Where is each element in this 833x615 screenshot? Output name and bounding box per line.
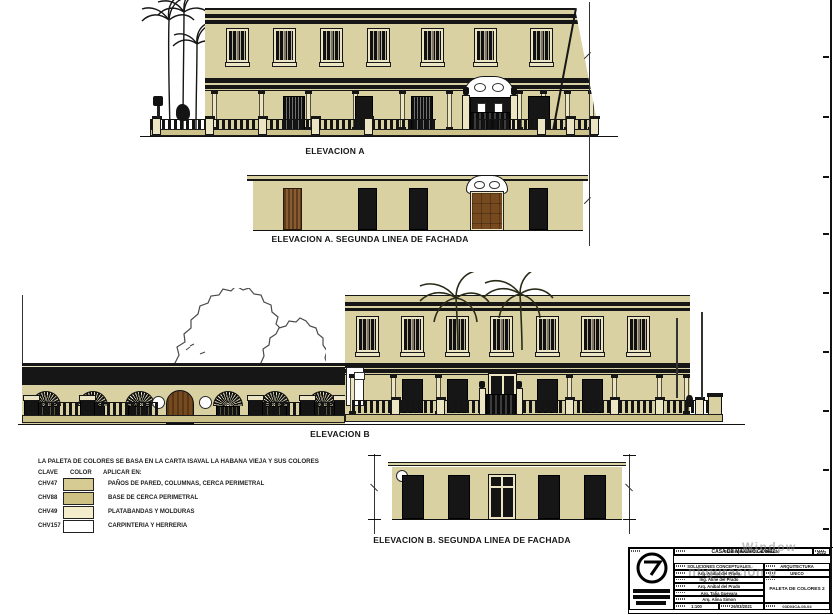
cornice-band xyxy=(345,369,690,373)
legend-code: CHV157 xyxy=(38,523,61,529)
ground-line xyxy=(18,424,745,426)
fence-railing xyxy=(39,402,80,415)
ground-line xyxy=(623,455,636,456)
window xyxy=(475,29,496,62)
line xyxy=(584,197,591,204)
fence-base xyxy=(345,414,723,422)
portal-ornament xyxy=(464,76,514,98)
round-window xyxy=(199,396,212,409)
statue xyxy=(686,395,693,407)
redacted-text-bar xyxy=(633,589,670,593)
color-swatch xyxy=(63,520,94,533)
ground-line xyxy=(253,230,583,231)
ground-line xyxy=(368,519,381,520)
dimension-line xyxy=(589,2,590,246)
window xyxy=(582,317,603,352)
logo-icon xyxy=(634,551,670,587)
door xyxy=(283,188,302,230)
window xyxy=(422,29,443,62)
fence-railing xyxy=(150,119,436,129)
legend-header-aplicar: APLICAR EN: xyxy=(103,470,142,476)
border-tick xyxy=(823,292,829,294)
fence-base xyxy=(22,415,345,423)
color-swatch xyxy=(63,492,94,505)
door xyxy=(471,192,503,230)
door xyxy=(538,475,560,519)
window xyxy=(531,29,552,62)
legend-header-color: COLOR xyxy=(70,470,92,476)
legend-code: CHV49 xyxy=(38,509,57,515)
dimension-line xyxy=(374,454,375,534)
team-member: Arq. Talia Guevara xyxy=(674,590,764,597)
fence-post xyxy=(152,117,161,135)
border-tick xyxy=(823,116,829,118)
tree-outlines xyxy=(168,288,326,366)
cornice-band xyxy=(205,14,598,18)
legend-title: LA PALETA DE COLORES SE BASA EN LA CARTA… xyxy=(38,458,319,465)
palm-fronds-b xyxy=(408,272,583,352)
fence-post xyxy=(537,117,546,135)
redacted-text-bar xyxy=(633,595,670,599)
legend-desc: BASE DE CERCA PERIMETRAL xyxy=(108,495,198,501)
window xyxy=(368,29,389,62)
fence-railing xyxy=(523,400,695,413)
legend-code: CHV88 xyxy=(38,495,57,501)
legend-desc: PLATABANDAS Y MOLDURAS xyxy=(108,509,195,515)
team-member: Arq. Anibal del Prado xyxy=(674,583,764,590)
color-swatch xyxy=(63,478,94,491)
sheet-title-cell: PALETA DE COLORES 2 xyxy=(764,577,830,603)
border-tick xyxy=(823,56,829,58)
ground-line xyxy=(392,519,622,520)
cornice-band xyxy=(205,20,598,24)
drawing-code-cell: 03D03CA-03-04 xyxy=(764,603,830,610)
redacted-text-bar xyxy=(636,601,666,605)
border-tick xyxy=(823,176,829,178)
dimension-line xyxy=(629,454,630,534)
fence-post xyxy=(311,117,320,135)
shrub xyxy=(176,104,190,121)
elevation-b-label: ELEVACION B xyxy=(280,429,400,439)
door xyxy=(409,188,428,230)
window xyxy=(274,29,295,62)
border-tick xyxy=(823,233,829,235)
team-member: Arq. Alina Simon xyxy=(674,596,764,603)
border-tick xyxy=(823,410,829,412)
column xyxy=(447,90,452,130)
fence-railing xyxy=(263,402,300,415)
dimension-line xyxy=(830,0,832,613)
elevation-a-label: ELEVACION A xyxy=(270,146,400,156)
fence-railing xyxy=(95,402,158,415)
lantern-icon xyxy=(511,87,517,95)
cornice-band xyxy=(205,85,598,89)
lantern-icon xyxy=(153,96,163,106)
ground-line xyxy=(623,519,636,520)
edge-line xyxy=(205,8,598,10)
legend-desc: PAÑOS DE PARED, COLUMNAS, CERCA PERIMETR… xyxy=(108,481,264,487)
door xyxy=(529,188,548,230)
fence-post xyxy=(205,117,214,135)
drawing-sheet: ELEVACION A ELEVACION A. SEGUNDA LINEA D… xyxy=(0,0,833,615)
legend-code: CHV47 xyxy=(38,481,57,487)
lantern-icon xyxy=(479,381,485,388)
door xyxy=(358,188,377,230)
border-tick xyxy=(823,351,829,353)
elevation-a2-label: ELEVACION A. SEGUNDA LINEA DE FACHADA xyxy=(250,234,490,244)
door xyxy=(402,475,424,519)
plaque xyxy=(354,372,365,380)
scale-cell: 1:100 xyxy=(674,603,719,610)
title-block: CASA DE MAXIMO GOMEZ 2022 5ta Esquina a … xyxy=(628,547,833,614)
fence-railing xyxy=(315,402,334,415)
dimension-line xyxy=(701,312,703,398)
cornice-band xyxy=(345,363,690,368)
elevation-b2-label: ELEVACION B. SEGUNDA LINEA DE FACHADA xyxy=(352,535,592,545)
fence-post xyxy=(590,117,599,135)
watermark-text: nfiguración p xyxy=(688,564,777,579)
fence-post xyxy=(566,117,575,135)
logo-cell xyxy=(629,548,674,610)
ground-line xyxy=(368,455,381,456)
window xyxy=(227,29,248,62)
door xyxy=(448,475,470,519)
dimension-line xyxy=(676,318,678,398)
window xyxy=(628,317,649,352)
cornice-band xyxy=(205,78,598,83)
color-swatch xyxy=(63,506,94,519)
legend-desc: CARPINTERIA Y HERRERIA xyxy=(108,523,187,529)
fence-post xyxy=(364,117,373,135)
door xyxy=(584,475,606,519)
watermark-text: Window xyxy=(742,540,797,554)
molding-line xyxy=(22,366,345,367)
date-cell: 26/03/2021 xyxy=(719,603,764,610)
lantern-icon xyxy=(516,381,522,388)
fence-railing xyxy=(352,400,479,413)
lamp-post xyxy=(157,104,160,118)
door xyxy=(489,475,515,519)
window xyxy=(357,317,378,352)
fence-post xyxy=(258,117,267,135)
window xyxy=(321,29,342,62)
border-tick xyxy=(823,469,829,471)
border-tick xyxy=(823,528,829,530)
lantern-icon xyxy=(463,87,469,95)
legend-header-clave: CLAVE xyxy=(38,470,58,476)
ground-line xyxy=(140,136,618,137)
